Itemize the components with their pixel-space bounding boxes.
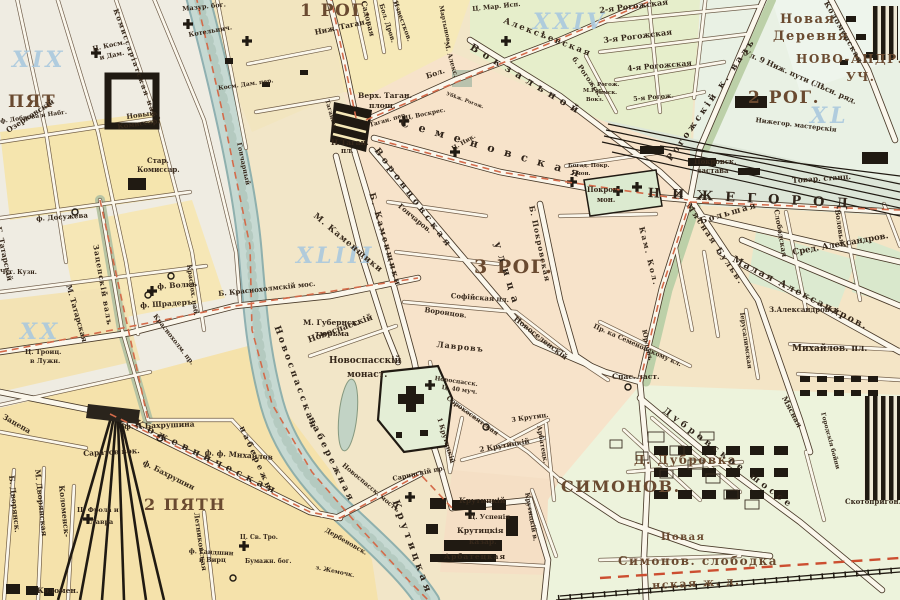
map-label: Мазур. бог. (182, 1, 226, 12)
map-label: Пр. ка Семеновскому кл. (592, 323, 682, 368)
map-label: Дербеновск. (324, 527, 368, 556)
map-label: монаст. (347, 371, 387, 380)
map-label: Лавра (90, 519, 113, 525)
district-label-2-pyatn: 2 ПЯТН (144, 497, 226, 512)
map-label: Гончарный (236, 142, 251, 186)
map-label: Сорокосвятская (445, 395, 499, 437)
map-label: з. Жемочк. (315, 565, 355, 579)
map-label: ф. Досужева (36, 212, 88, 222)
map-label: Комиссаріатская наб. (112, 8, 159, 123)
map-label: пл. (341, 148, 354, 155)
taganka-square-label: Верх. Таган. (358, 92, 412, 99)
map-label: застава (697, 168, 729, 175)
novospassky-monastery-label: Новоспасскій (329, 357, 401, 366)
map-label: Воронцов. (424, 307, 467, 319)
map-label: Б. Дворянск. (8, 475, 21, 533)
map-label: Арбатецк. (536, 425, 549, 464)
pokrovsky-monastery-label: Покров. (587, 187, 620, 194)
map-label: Слободская (772, 209, 787, 258)
map-label: Новоселенскій (513, 315, 569, 361)
map-label: 5-я Рогож. (633, 92, 674, 102)
map-label: Городскія бойни (820, 412, 841, 470)
map-viewport: 1 РОГ.2 РОГ.3 РОГ.ПЯТ2 ПЯТНСИМОНОВ.Д. Ду… (0, 0, 900, 600)
map-label: Убѣж. Рогож. (445, 92, 484, 110)
map-label: Коломенск- (58, 485, 71, 537)
map-label: 2-я Рогожская (599, 0, 668, 15)
map-label: Юрловъ (641, 329, 654, 361)
map-label: 3 Крутиц. (511, 412, 549, 423)
map-label: Вокз. (586, 98, 604, 103)
map-label: 3-я Рогожская (603, 29, 672, 45)
sheet-number-xx: XX (20, 322, 60, 343)
map-label: З.Александровск. (769, 307, 841, 314)
map-label: набережная (306, 416, 355, 505)
map-label: Михайлов. пл. (792, 345, 867, 354)
saratov-station-label: Саратов вок. (83, 447, 140, 457)
map-label: Скотопригон. (845, 499, 900, 506)
map-label: Мясная (781, 395, 803, 429)
map-label: ямск. (599, 91, 617, 96)
map-label: Комиссар. (137, 167, 180, 174)
map-label: Косм. Дам. пер. (218, 78, 274, 91)
map-label: Чуг. Кузн. (0, 270, 37, 276)
map-label: Ц. Троиц. (25, 349, 61, 355)
map-label: Ц. Успенія (469, 514, 510, 520)
map-label: Рогож. (597, 83, 619, 88)
map-label: Спас. заст. (612, 373, 660, 380)
map-label: нская ж. д. (652, 576, 741, 591)
map-label: ф. Шрадеръ (140, 298, 193, 309)
map-label: М. Дворянская (34, 469, 48, 536)
map-label: казар. (469, 538, 497, 545)
district-label-simonov: СИМОНОВ. (561, 479, 681, 494)
map-label: Саринскій пр. (392, 465, 445, 482)
map-label: Софійская пл. (451, 293, 510, 304)
map-label: Краснох. наб. (186, 264, 199, 316)
map-label: Новая (780, 14, 836, 26)
map-label: Комиссар. (117, 118, 160, 131)
map-label: Бол. (425, 67, 446, 80)
map-label: Крутицкій в. (524, 492, 539, 542)
map-label: Новая (661, 533, 705, 543)
map-label: площ. (369, 102, 396, 109)
map-label: Кам. Кол. (638, 226, 660, 287)
map-label: М. Алекс. (443, 41, 459, 78)
map-label: Крутицкая (390, 499, 433, 597)
map-label: Крутицкія (457, 527, 503, 534)
map-label: Мартынов. (437, 5, 451, 44)
map-label: Краснохолм. пр. (152, 313, 195, 366)
map-label: мон. (576, 172, 590, 177)
map-label: Малая Александров. (731, 255, 870, 332)
map-label: Товар. станц. (792, 173, 851, 184)
map-label: 4-я Рогожская (627, 59, 692, 72)
map-label: Коломен. (37, 587, 79, 594)
map-label: 1 Крутицкій (436, 417, 456, 464)
map-label: Таганск. (324, 99, 338, 130)
map-label: Деревня (773, 31, 849, 43)
semenovskaya-street-label: Семеновская (399, 118, 590, 182)
map-label: Зацепа (1, 413, 31, 435)
map-label: М. Татарская (65, 284, 88, 343)
krutitsky-barracks-label: Крутицкій (459, 497, 505, 504)
map-label: Іерусалимская (739, 312, 753, 369)
map-labels-layer: 1 РОГ.2 РОГ.3 РОГ.ПЯТ2 ПЯТНСИМОНОВ.Д. Ду… (0, 0, 900, 600)
sheet-number-xxiv: XXIV (533, 12, 607, 33)
map-label: Бумажн. бог. (245, 559, 291, 565)
map-label: Ц. Мар. Исп. (472, 1, 521, 12)
map-label: в Лужн. (30, 358, 60, 364)
map-label: Б. Краснохолмскій мос. (218, 281, 316, 298)
map-label: Вокзальной (468, 43, 585, 118)
sheet-number-xix: XIX (12, 50, 65, 71)
map-label: НОВО-АНДР. (796, 54, 900, 65)
map-label: Покровск. (694, 159, 737, 166)
map-label: Летниковская (192, 512, 207, 571)
map-label: УЧ. (846, 72, 875, 83)
map-label: Котельнич. (188, 24, 232, 38)
map-label: Зацепскій валъ (92, 244, 113, 326)
map-label: Лавровъ (436, 341, 484, 354)
map-label: Богад. Покр. (568, 164, 609, 169)
map-label: Ц. Фрола и (77, 507, 119, 513)
map-label: Арбатецкая (444, 553, 506, 560)
map-label: Ц. Св. Тро. (240, 535, 278, 541)
map-label: Стар. (147, 158, 169, 165)
map-label: Симонов. слободка (618, 556, 778, 567)
map-label: ф. Бахрушин (142, 459, 196, 491)
map-label: 2 Крутицкій (479, 438, 530, 453)
map-label: и Дам. (99, 50, 125, 61)
map-label: мон. (597, 197, 615, 204)
